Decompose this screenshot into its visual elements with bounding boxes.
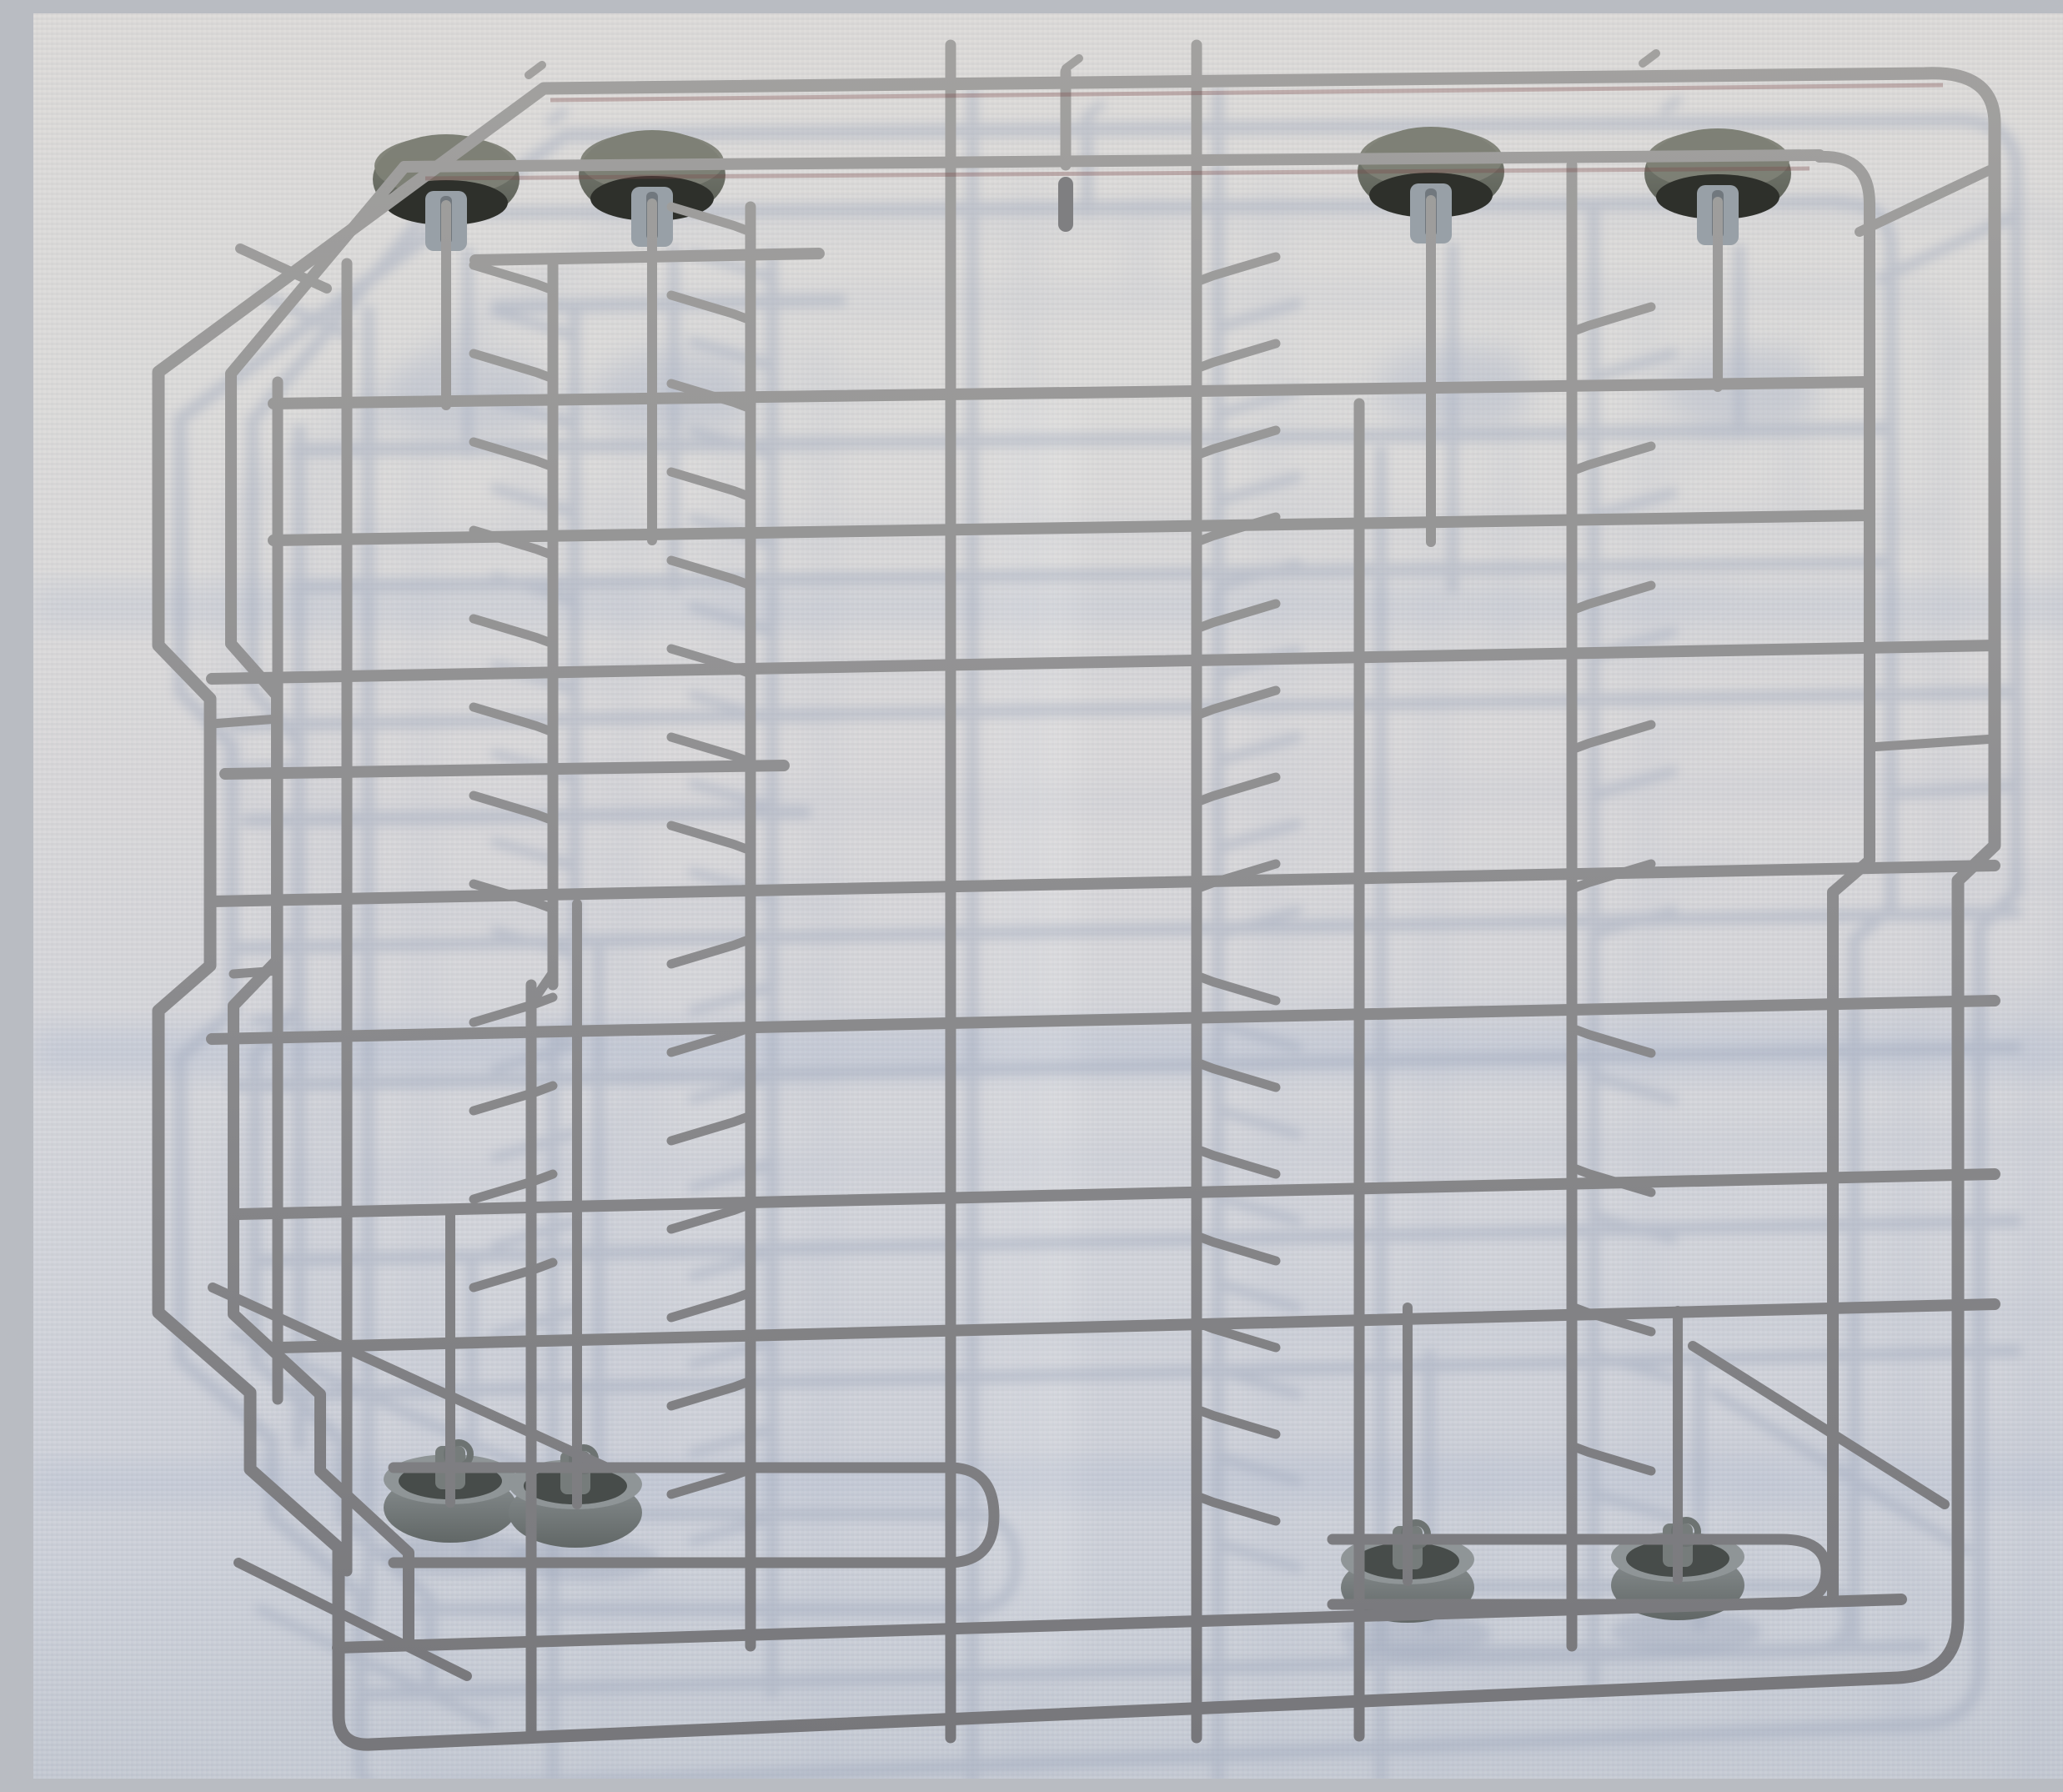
- photo-vignette: [33, 13, 2063, 1779]
- product-photo: Photograph of a bare metal lower dishwas…: [33, 13, 2063, 1779]
